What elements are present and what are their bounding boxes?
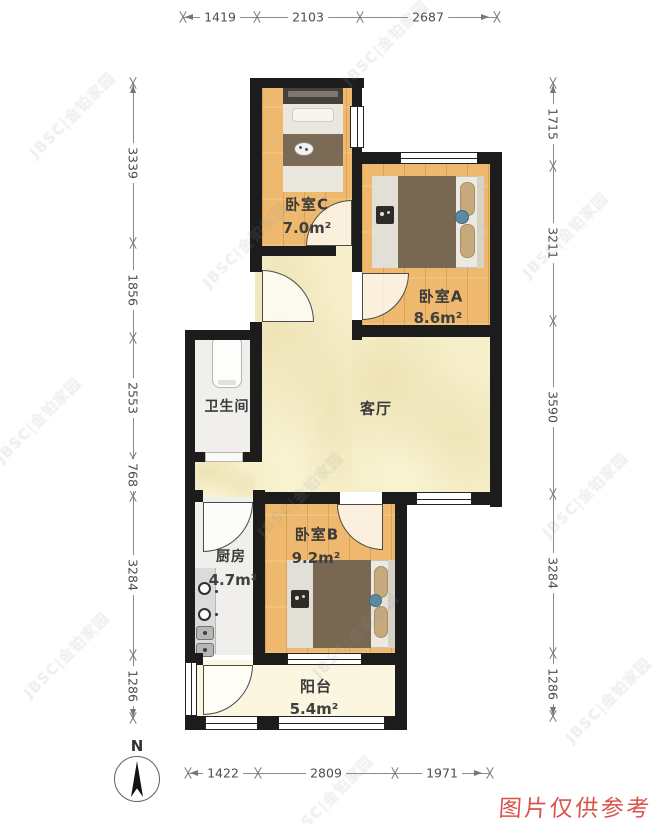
dim-bottom-3: 1971	[422, 766, 462, 781]
wall	[472, 492, 502, 505]
dim-left-6: 1286	[126, 666, 141, 706]
bed-a-nightstand	[376, 206, 394, 224]
dim-top-1: 1419	[200, 10, 240, 25]
dim-left-4: 768	[126, 459, 141, 491]
bed-a-headboard	[477, 176, 484, 268]
dimension-tick	[492, 12, 502, 22]
kitchen-area: 4.7m²	[209, 571, 258, 589]
arrow-icon	[130, 709, 136, 717]
bed-c-headboard-shelf	[288, 91, 338, 97]
wall	[478, 152, 490, 164]
dim-right-4: 3284	[546, 553, 561, 593]
bed-a-duvet	[398, 176, 456, 268]
bed-a-nightstand-dot	[387, 211, 390, 214]
arrow-icon	[185, 14, 193, 20]
dimension-tick	[128, 491, 138, 501]
arrow-icon	[550, 707, 556, 715]
dimension-tick	[485, 768, 495, 778]
balcony-label: 阳台	[300, 676, 332, 697]
dimension-tick	[548, 161, 558, 171]
watermark: JBSC|金铂家园	[561, 653, 656, 748]
watermark: JBSC|金铂家园	[283, 751, 378, 824]
wall	[250, 330, 262, 462]
arrow-icon	[190, 770, 198, 776]
dimension-tick	[355, 12, 365, 22]
dim-left-1: 3339	[126, 143, 141, 183]
wall	[352, 148, 362, 272]
wall	[185, 716, 205, 730]
window-living-room	[416, 492, 472, 505]
wall	[352, 320, 362, 340]
bedroom-b-area: 9.2m²	[292, 549, 341, 567]
dimension-tick	[128, 650, 138, 660]
wall	[250, 246, 336, 256]
stove-burner	[198, 608, 211, 621]
bedroom-a-area: 8.6m²	[414, 309, 463, 327]
dim-left-2: 1856	[126, 270, 141, 310]
bed-a-pillow	[460, 224, 475, 258]
bed-c-cushion-dot	[305, 148, 308, 151]
bed-a-ornament	[455, 210, 469, 224]
dimension-tick	[128, 333, 138, 343]
bed-b-nightstand	[291, 590, 309, 608]
window-balcony-bottom	[278, 716, 385, 730]
wall	[255, 653, 287, 665]
stove-knob-dot	[215, 613, 218, 616]
wall	[490, 152, 502, 507]
bed-c-cushion-dot	[299, 146, 302, 149]
watermark: JBSC|金铂家园	[19, 608, 114, 703]
dim-bottom-1: 1422	[203, 766, 243, 781]
compass-north-label: N	[131, 737, 144, 755]
dim-right-1: 1715	[546, 104, 561, 144]
watermark: JBSC|金铂家园	[518, 188, 613, 283]
window-balcony-left	[185, 662, 197, 716]
arrow-icon	[481, 14, 489, 20]
dimension-tick	[252, 12, 262, 22]
dim-left-5: 3284	[126, 555, 141, 595]
wall	[395, 492, 407, 668]
watermark: JBSC|金铂家园	[338, 0, 433, 90]
arrow-icon	[130, 85, 136, 93]
balcony-area: 5.4m²	[290, 700, 339, 718]
dimension-tick	[253, 768, 263, 778]
dimension-tick	[390, 768, 400, 778]
window-bedroom-c	[350, 106, 364, 148]
watermark: JBSC|金铂家园	[0, 373, 85, 468]
arrow-icon	[474, 770, 482, 776]
wall	[362, 152, 400, 164]
wall	[385, 716, 397, 730]
dim-left-3: 2553	[126, 378, 141, 418]
dim-top-2: 2103	[288, 10, 328, 25]
dimension-tick	[548, 648, 558, 658]
bed-b-nightstand-dot	[295, 596, 299, 600]
bedroom-b-label: 卧室B	[295, 524, 339, 545]
dimension-tick	[548, 316, 558, 326]
corridor-floor	[195, 460, 255, 500]
window-bedroom-a	[400, 152, 478, 164]
wall	[243, 452, 262, 462]
bed-c-cushion	[294, 142, 314, 156]
dimension-tick	[548, 489, 558, 499]
dim-right-5: 1286	[546, 664, 561, 704]
kitchen-label: 厨房	[216, 546, 246, 566]
bathroom-threshold	[205, 452, 243, 462]
watermark: JBSC|金铂家园	[25, 68, 120, 163]
living-room-label: 客厅	[360, 398, 392, 419]
bed-c-foot	[283, 166, 343, 192]
bed-a-nightstand-dot	[380, 212, 384, 216]
dim-right-3: 3590	[546, 387, 561, 427]
disclaimer-text: 图片仅供参考	[498, 789, 653, 823]
bathroom-fixture-base	[218, 380, 236, 385]
wall	[185, 452, 205, 462]
bedroom-a-label: 卧室A	[419, 286, 464, 307]
sink-drain	[203, 631, 207, 635]
floor-plan-canvas: 卧室C 7.0m² 卧室A 8.6m² 卫生间 客厅 厨房 4.7m² 卧室B …	[0, 0, 671, 824]
bed-c-pillow	[292, 108, 334, 122]
arrow-icon	[550, 85, 556, 93]
stove-knob-dot	[215, 590, 218, 593]
bathroom-label: 卫生间	[205, 396, 250, 416]
window-balcony-bottom	[205, 716, 258, 730]
wall	[382, 492, 395, 504]
bed-b-nightstand-dot	[302, 595, 305, 598]
sink-drain	[203, 648, 207, 652]
dimension-tick	[128, 238, 138, 248]
bedroom-c-area: 7.0m²	[283, 219, 332, 237]
wall	[258, 716, 278, 730]
wall	[185, 490, 203, 502]
